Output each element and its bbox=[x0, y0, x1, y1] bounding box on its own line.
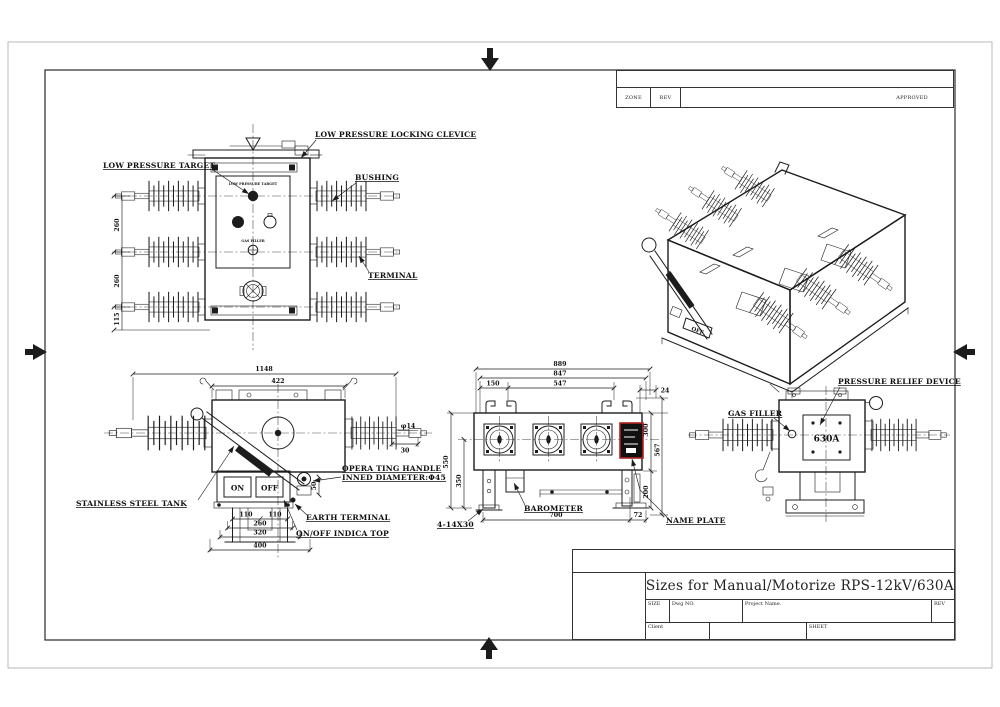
handle-view-drawing: ON OFF 1148 422 φ14 30 50 110 110 260 bbox=[76, 366, 446, 558]
revision-rev-header: REV bbox=[651, 88, 681, 107]
dim-30: 30 bbox=[401, 448, 410, 455]
callout-on-off-indica: ON/OFF INDICA TOP bbox=[296, 529, 389, 538]
dim-72: 72 bbox=[634, 512, 643, 519]
callout-pressure-relief: PRESSURE RELIEF DEVICE bbox=[838, 377, 961, 386]
callout-earth-terminal: EARTH TERMINAL bbox=[306, 513, 390, 522]
registration-mark-top bbox=[481, 48, 499, 71]
switch-off-label: OFF bbox=[261, 484, 279, 493]
dim-110-left: 110 bbox=[239, 512, 253, 519]
iso-off-label: OFF bbox=[690, 326, 704, 336]
dim-320: 320 bbox=[253, 530, 267, 537]
callout-locking-clevice: LOW PRESSURE LOCKING CLEVICE bbox=[315, 130, 476, 139]
front-view-drawing: LOW PRESSURE TARGET GAS FILLER 260 260 1… bbox=[103, 124, 476, 350]
blank-field bbox=[710, 623, 807, 639]
dim-150: 150 bbox=[486, 381, 500, 388]
registration-mark-right bbox=[953, 344, 975, 360]
dim-422: 422 bbox=[271, 378, 284, 385]
dim-547: 547 bbox=[553, 381, 566, 388]
dim-260-lower: 260 bbox=[114, 274, 121, 288]
gas-view-drawing: 630A PRESSURE RELIEF DEVICE GAS FILLER bbox=[688, 377, 961, 522]
title-block-left-cell bbox=[573, 573, 646, 639]
title-block-top-strip bbox=[573, 550, 954, 573]
callout-stainless-steel-tank: STAINLESS STEEL TANK bbox=[76, 499, 187, 508]
revision-approved-header: APPROVED bbox=[681, 95, 953, 101]
callout-low-pressure-target: LOW PRESSURE TARGET bbox=[103, 161, 215, 170]
drawing-sheet: { "colors": {"line":"#1c1c1c","name_plat… bbox=[0, 0, 1000, 707]
dim-567: 567 bbox=[655, 443, 662, 456]
dim-300: 300 bbox=[643, 423, 650, 437]
dim-phi14: φ14 bbox=[401, 423, 416, 430]
callout-gas-filler: GAS FILLER bbox=[728, 409, 783, 418]
dim-400: 400 bbox=[253, 543, 267, 550]
drawing-title: Sizes for Manual/Motorize RPS-12kV/630A bbox=[646, 573, 954, 600]
callout-operating-handle-1: OPERA TING HANDLE bbox=[342, 464, 441, 473]
dim-110-right: 110 bbox=[268, 512, 282, 519]
revision-zone-header: ZONE bbox=[617, 88, 651, 107]
plan-view-drawing: 889 847 150 547 24 550 350 300 567 200 7… bbox=[437, 361, 726, 529]
callout-name-plate: NAME PLATE bbox=[666, 516, 726, 525]
rev-field: REV bbox=[932, 600, 954, 622]
dim-115: 115 bbox=[114, 312, 121, 325]
revision-table-empty-row bbox=[617, 71, 953, 88]
dim-1148: 1148 bbox=[255, 366, 273, 373]
callout-terminal: TERMINAL bbox=[368, 271, 418, 280]
client-field: Client bbox=[646, 623, 710, 639]
switch-on-label: ON bbox=[231, 484, 244, 493]
dim-260-upper: 260 bbox=[114, 218, 121, 232]
name-plate bbox=[620, 423, 643, 458]
panel-gas-text: GAS FILLER bbox=[241, 239, 265, 243]
iso-view-drawing: OFF bbox=[642, 159, 908, 398]
dim-260: 260 bbox=[253, 521, 267, 528]
dim-350: 350 bbox=[456, 474, 463, 488]
dim-550: 550 bbox=[443, 455, 450, 469]
callout-4-14x30: 4-14X30 bbox=[437, 520, 474, 529]
rating-630a: 630A bbox=[814, 435, 841, 445]
dim-24: 24 bbox=[661, 388, 670, 395]
dwg-no-field: Dwg NO. bbox=[670, 600, 743, 622]
dim-889: 889 bbox=[553, 361, 566, 368]
title-block: Sizes for Manual/Motorize RPS-12kV/630A … bbox=[572, 549, 955, 640]
dim-847: 847 bbox=[553, 371, 566, 378]
dim-700: 700 bbox=[549, 512, 563, 519]
project-name-field: Project Name. bbox=[743, 600, 932, 622]
size-field: SIZE bbox=[646, 600, 670, 622]
callout-barometer: BAROMETER bbox=[524, 504, 583, 513]
registration-mark-left bbox=[25, 344, 47, 360]
callout-bushing: BUSHING bbox=[355, 173, 399, 182]
sheet-field: SHEET bbox=[807, 623, 954, 639]
callout-operating-handle-2: INNED DIAMETER:Φ45 bbox=[342, 473, 446, 482]
dim-50: 50 bbox=[311, 481, 318, 490]
revision-table: ZONE REV APPROVED bbox=[616, 70, 954, 108]
